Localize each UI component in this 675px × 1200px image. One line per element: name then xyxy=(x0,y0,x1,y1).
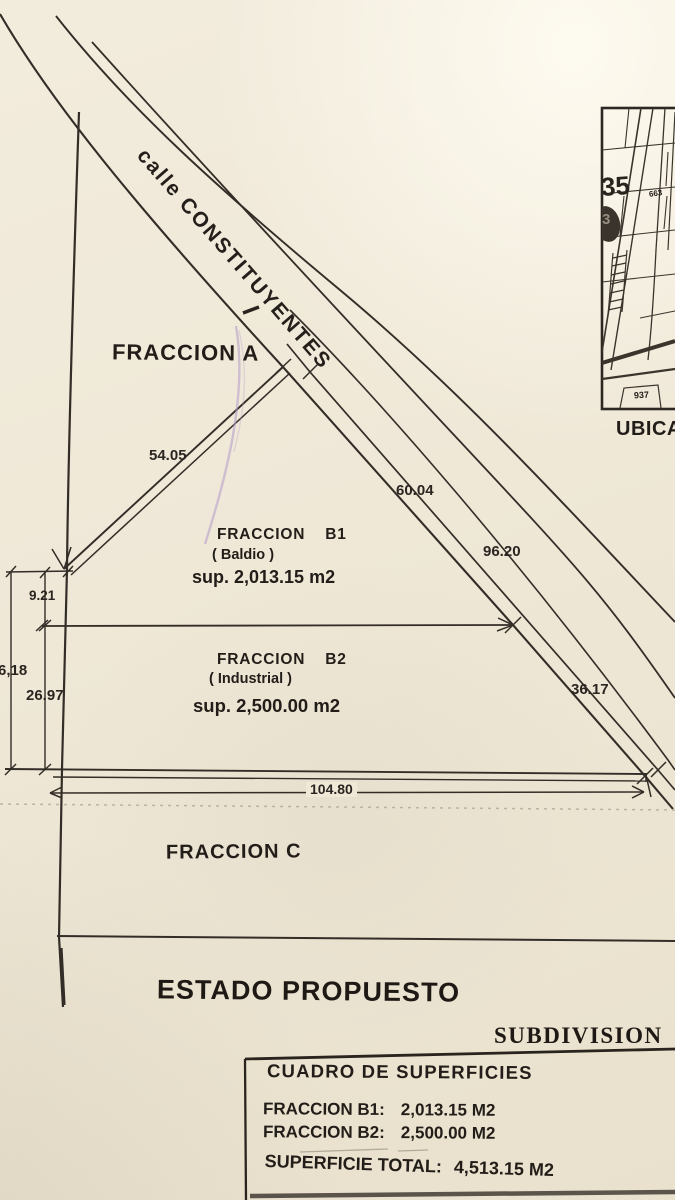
inset-block-number: 35 xyxy=(600,172,631,201)
dim-b2-street: 36.17 xyxy=(571,682,609,698)
b1-b2-divider-line xyxy=(42,625,511,626)
table-row-b2-value: 2,500.00 M2 xyxy=(401,1123,496,1143)
fraccion-b1-use: ( Baldio ) xyxy=(212,548,274,563)
street-inner-line xyxy=(290,310,675,770)
table-border-bottom xyxy=(250,1192,675,1196)
scanned-subdivision-plan: calle CONSTITUYENTES FRACCION A FRACCION… xyxy=(0,0,675,1200)
fraccion-b1-name: FRACCION xyxy=(217,526,305,543)
fraccion-b2-id: B2 xyxy=(325,651,346,668)
table-row-b1-value: 2,013.15 M2 xyxy=(401,1100,496,1120)
crease-dotted-line xyxy=(0,804,675,810)
table-title: CUADRO DE SUPERFICIES xyxy=(267,1061,533,1082)
parcel-lines xyxy=(5,112,675,1007)
table-row-b1: FRACCION B1:2,013.15 M2 xyxy=(263,1100,495,1119)
c-south-line xyxy=(57,936,675,941)
plan-drawing xyxy=(0,0,675,1200)
inset-map xyxy=(591,108,675,409)
stray-dash-mark xyxy=(243,307,259,313)
dim-west-b2: 26.97 xyxy=(26,688,64,704)
dim-b1-street: 60.04 xyxy=(396,483,434,499)
fraccion-b2-title: FRACCIONB2 xyxy=(217,652,347,668)
table-row-b2-label: FRACCION B2: xyxy=(263,1122,385,1142)
west-boundary-line xyxy=(59,112,79,1007)
table-row-b1-label: FRACCION B1: xyxy=(263,1099,385,1119)
table-total-value: 4,513.15 M2 xyxy=(454,1157,555,1180)
fraccion-b1-id: B1 xyxy=(325,526,346,543)
street-edge-nw-1 xyxy=(56,16,675,622)
fraccion-b2-name: FRACCION xyxy=(217,651,305,668)
b2-south-line-1 xyxy=(5,769,646,774)
inset-street-right-2 xyxy=(668,112,675,250)
inset-blob-digit: 3 xyxy=(602,212,610,228)
dim-west-b1: 9.21 xyxy=(29,589,55,603)
inset-thick-street-2 xyxy=(602,369,675,379)
inset-thick-street-1 xyxy=(602,341,675,363)
dim-street-total: 96.20 xyxy=(483,544,521,560)
dim-west-total: 6,18 xyxy=(0,663,27,679)
scan-overline-artifact xyxy=(300,1149,428,1152)
street-curb-line xyxy=(287,344,675,790)
table-border-top xyxy=(245,1049,675,1059)
west-dim-bar xyxy=(6,571,73,572)
fraccion-b1-area: sup. 2,013.15 m2 xyxy=(192,568,335,587)
inset-lot-937: 937 xyxy=(634,390,650,400)
south-dim-hook xyxy=(646,775,651,797)
table-row-b2: FRACCION B2:2,500.00 M2 xyxy=(263,1123,495,1142)
street-edge-nw-2 xyxy=(92,42,675,698)
fraccion-b2-use: ( Industrial ) xyxy=(209,672,292,687)
dim-nw-edge: 54.05 xyxy=(149,448,187,464)
main-title: ESTADO PROPUESTO xyxy=(157,975,460,1007)
subdivision-title: SUBDIVISION xyxy=(494,1024,663,1048)
fraccion-b2-area: sup. 2,500.00 m2 xyxy=(193,696,340,715)
fraccion-a-label: FRACCION A xyxy=(112,340,259,364)
fraccion-b1-title: FRACCIONB1 xyxy=(217,527,347,543)
dim-south-edge: 104.80 xyxy=(306,782,357,797)
table-border-left xyxy=(245,1059,246,1200)
fraccion-c-label: FRACCION C xyxy=(166,841,302,863)
b1-nw-dimension-line xyxy=(71,373,290,575)
inset-caption: UBICACION xyxy=(616,419,675,440)
